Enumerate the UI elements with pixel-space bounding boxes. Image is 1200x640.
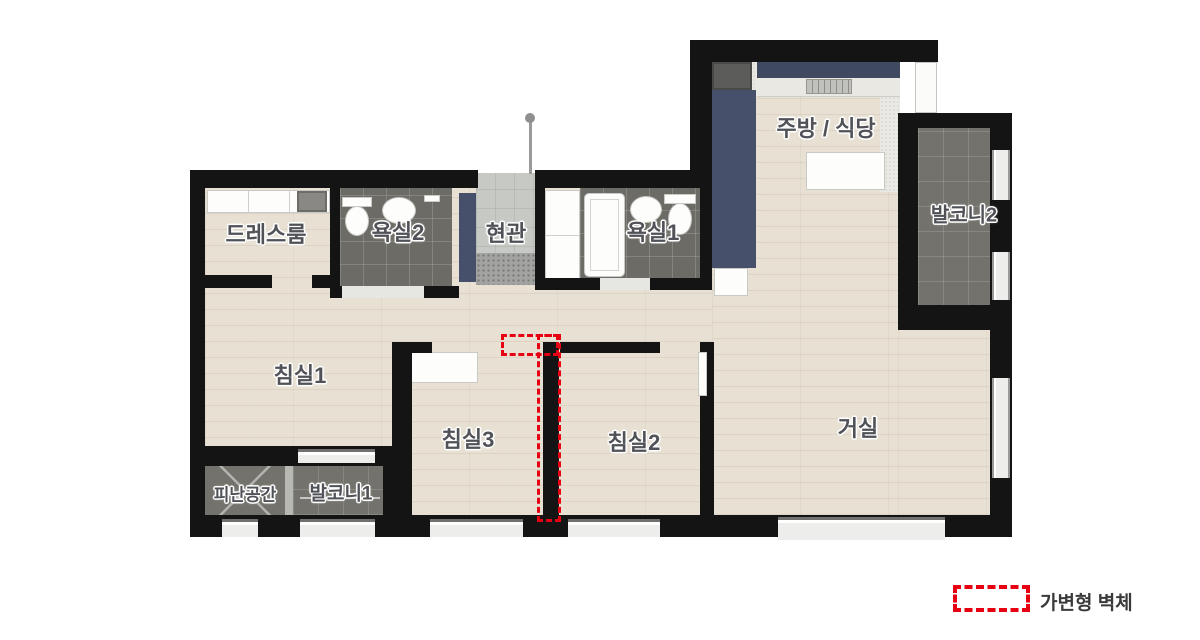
bathroom2-toilet-bowl: [345, 206, 369, 236]
floor-living-right-wood: [898, 330, 990, 515]
label-balcony2: 발코니2: [931, 199, 997, 228]
bathroom2-shower: [424, 195, 440, 202]
wall-entrance-right: [535, 170, 545, 288]
kitchen-upper-cabinet: [757, 62, 900, 78]
label-refuge: 피난공간: [214, 481, 277, 506]
label-bathroom2: 욕실2: [372, 215, 425, 247]
entrance-doormat: [476, 253, 535, 285]
wall-dressroom-bottom-a: [190, 275, 272, 288]
window-bedroom1-balcony: [298, 449, 375, 463]
wall-top-mid: [535, 170, 712, 188]
entrance-side-cabinet: [459, 193, 476, 282]
wall-top-left: [190, 170, 478, 188]
wall-bedroom3-top-stub: [392, 342, 432, 353]
entrance-door-knob: [525, 113, 535, 123]
bedroom3-closet: [402, 352, 478, 383]
label-bedroom2: 침실2: [608, 425, 661, 457]
wall-balcony2-bottom: [898, 305, 1012, 330]
wall-left: [190, 170, 205, 537]
bathroom1-bathtub: [584, 193, 625, 277]
kitchen-tall-unit: [712, 90, 756, 268]
floor-plan: 드레스룸 욕실2 현관 욕실1 주방 / 식당 발코니2 침실1 침실3 침실2…: [0, 0, 1200, 640]
window-balcony1-bottom: [300, 519, 375, 537]
kitchen-cabinet-end: [714, 268, 748, 296]
bathroom2-door-threshold: [342, 286, 424, 298]
variable-wall-vertical-marker: [537, 334, 561, 522]
window-balcony2-right-lower: [992, 252, 1010, 300]
window-bedroom3-bottom: [430, 519, 523, 537]
label-living: 거실: [838, 411, 878, 443]
window-bedroom2-bottom: [568, 519, 660, 537]
wall-bedroom3-left: [392, 342, 412, 515]
wall-bathroom1-right: [700, 188, 712, 280]
dressroom-vent-unit: [297, 191, 327, 212]
label-entrance: 현관: [486, 216, 526, 248]
entrance-door-symbol: [529, 118, 532, 174]
kitchen-island-counter: [806, 152, 885, 190]
wall-bedroom2-top: [560, 342, 660, 353]
bedroom2-door-leaf: [698, 352, 707, 396]
window-living-right: [992, 378, 1010, 478]
wall-kitchen-left: [690, 40, 712, 188]
label-bathroom1: 욕실1: [627, 215, 680, 247]
label-bedroom1: 침실1: [274, 358, 327, 390]
wall-kitchen-top: [690, 40, 938, 62]
window-living-bottom: [778, 517, 945, 540]
label-dressroom: 드레스룸: [226, 217, 307, 249]
kitchen-hood-appliance: [712, 62, 752, 90]
window-refuge-bottom: [222, 519, 258, 537]
label-balcony1: 발코니1: [309, 479, 372, 506]
refuge-balcony1-divider: [285, 466, 293, 515]
label-bedroom3: 침실3: [442, 422, 495, 454]
wall-dressroom-bathroom2: [330, 188, 340, 288]
legend-variable-wall-label: 가변형 벽체: [1040, 588, 1133, 615]
entrance-shoe-closet: [545, 190, 580, 283]
wall-balcony2-left: [898, 113, 918, 328]
label-kitchen-dining: 주방 / 식당: [776, 111, 875, 143]
legend-variable-wall-swatch: [953, 585, 1030, 612]
kitchen-side-door: [915, 62, 937, 113]
bathroom1-door-threshold: [600, 278, 650, 290]
kitchen-sink: [806, 79, 852, 94]
window-balcony2-right-upper: [992, 150, 1010, 200]
